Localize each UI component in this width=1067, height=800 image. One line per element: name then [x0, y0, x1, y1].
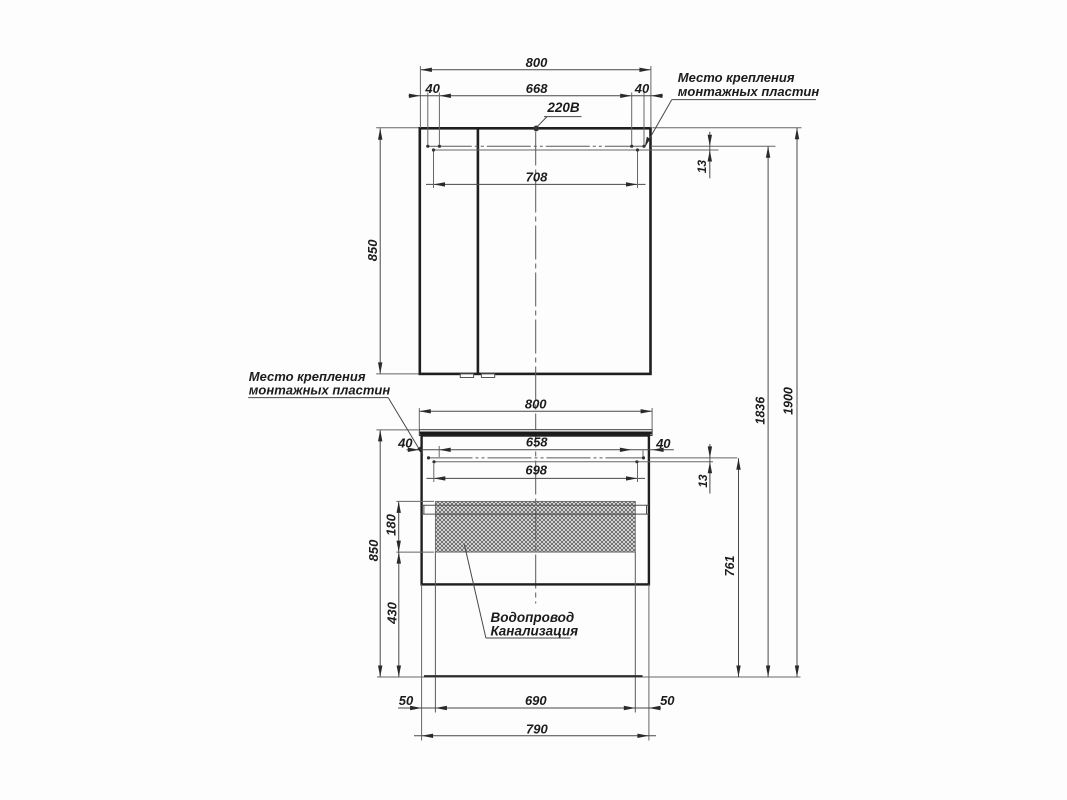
- svg-text:монтажных пластин: монтажных пластин: [678, 84, 820, 99]
- svg-text:13: 13: [695, 160, 709, 174]
- svg-text:монтажных пластин: монтажных пластин: [249, 383, 391, 398]
- svg-text:Водопровод: Водопровод: [491, 610, 575, 625]
- svg-text:50: 50: [399, 693, 414, 708]
- svg-text:790: 790: [526, 722, 548, 737]
- svg-text:690: 690: [525, 693, 547, 708]
- svg-text:13: 13: [696, 474, 710, 488]
- svg-text:40: 40: [634, 81, 650, 96]
- svg-text:1836: 1836: [754, 396, 768, 425]
- svg-text:800: 800: [525, 397, 547, 412]
- svg-text:40: 40: [655, 436, 671, 451]
- svg-text:761: 761: [723, 556, 737, 577]
- svg-text:220В: 220В: [546, 100, 580, 115]
- svg-text:40: 40: [424, 81, 440, 96]
- svg-text:180: 180: [383, 513, 398, 535]
- svg-text:Место крепления: Место крепления: [249, 369, 366, 384]
- svg-text:850: 850: [365, 239, 380, 261]
- svg-text:800: 800: [526, 55, 548, 70]
- svg-text:658: 658: [526, 435, 548, 450]
- svg-text:50: 50: [660, 693, 675, 708]
- svg-text:708: 708: [526, 170, 548, 185]
- svg-text:698: 698: [525, 463, 547, 478]
- svg-text:Место крепления: Место крепления: [678, 70, 795, 85]
- svg-text:40: 40: [397, 436, 413, 451]
- svg-text:668: 668: [526, 81, 548, 96]
- svg-text:430: 430: [384, 601, 399, 624]
- svg-text:Канализация: Канализация: [491, 624, 579, 639]
- svg-text:850: 850: [366, 539, 381, 561]
- svg-text:1900: 1900: [782, 387, 796, 415]
